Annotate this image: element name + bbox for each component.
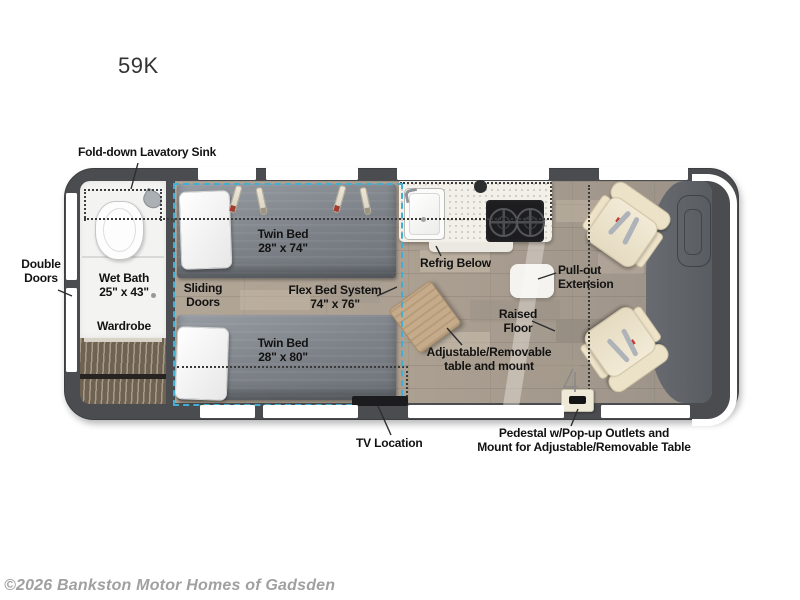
window-bottom (601, 405, 690, 418)
sink-drain-icon (421, 217, 426, 222)
window-top (397, 167, 549, 180)
page-title: 59K (118, 53, 159, 79)
label-wardrobe: Wardrobe (84, 320, 164, 334)
label-pedestal: Pedestal w/Pop-up Outlets and Mount for … (468, 427, 700, 455)
pedestal-label-line2: Mount for Adjustable/Removable Table (468, 441, 700, 455)
label-flex-bed: Flex Bed System 74" x 76" (287, 284, 383, 312)
wardrobe-rod (80, 374, 166, 379)
cooktop-icon (486, 200, 544, 242)
label-twin-bed-bottom: Twin Bed 28" x 80" (233, 337, 333, 365)
windshield (692, 174, 737, 426)
wardrobe-cabinet (80, 338, 166, 404)
burner-icon (489, 208, 518, 237)
lavatory-dotted-outline (84, 189, 162, 221)
wardrobe-shelf (84, 338, 162, 342)
label-refrig-below: Refrig Below (420, 257, 510, 271)
label-raised-floor: Raised Floor (492, 308, 544, 336)
twin-bed-bottom-dim: 28" x 80" (233, 351, 333, 365)
window-top (198, 167, 256, 180)
pedestal-outlet (561, 389, 594, 412)
window-bottom (408, 405, 564, 418)
label-fold-down-sink: Fold-down Lavatory Sink (78, 146, 223, 160)
burner-icon (516, 208, 545, 237)
counter-vent-icon (474, 180, 487, 193)
floorplan-page: 59K (0, 0, 800, 600)
flex-bed-dim: 74" x 76" (287, 298, 383, 312)
refrigerator-drawer (429, 242, 513, 252)
label-twin-bed-top: Twin Bed 28" x 74" (233, 228, 333, 256)
window-bottom (200, 405, 255, 418)
wet-bath-dim: 25" x 43" (84, 286, 164, 300)
window-top (599, 167, 688, 180)
label-adjustable-table: Adjustable/Removable table and mount (424, 346, 554, 374)
label-sliding-doors: Sliding Doors (177, 282, 229, 310)
window-bottom (263, 405, 358, 418)
raised-floor-dotted-line (588, 185, 590, 402)
pedestal-slot (569, 396, 586, 404)
twin-bed-bottom-name: Twin Bed (233, 337, 333, 351)
rear-door-upper (66, 193, 77, 280)
label-tv-location: TV Location (356, 437, 446, 451)
pedestal-label-line1: Pedestal w/Pop-up Outlets and (468, 427, 700, 441)
label-double-doors: Double Doors (18, 258, 64, 286)
rear-door-lower (66, 288, 77, 372)
twin-bed-top-dim: 28" x 74" (233, 242, 333, 256)
copyright-watermark: ©2026 Bankston Motor Homes of Gadsden (4, 577, 335, 595)
label-wet-bath: Wet Bath 25" x 43" (84, 272, 164, 300)
twin-bed-top-name: Twin Bed (233, 228, 333, 242)
window-top (266, 167, 358, 180)
faucet-icon (404, 188, 419, 203)
wet-bath-name: Wet Bath (84, 272, 164, 286)
label-pull-out: Pull-out Extension (558, 264, 628, 292)
flex-bed-name: Flex Bed System (287, 284, 383, 298)
tv-icon (352, 396, 408, 406)
pull-out-extension-panel (510, 264, 554, 298)
